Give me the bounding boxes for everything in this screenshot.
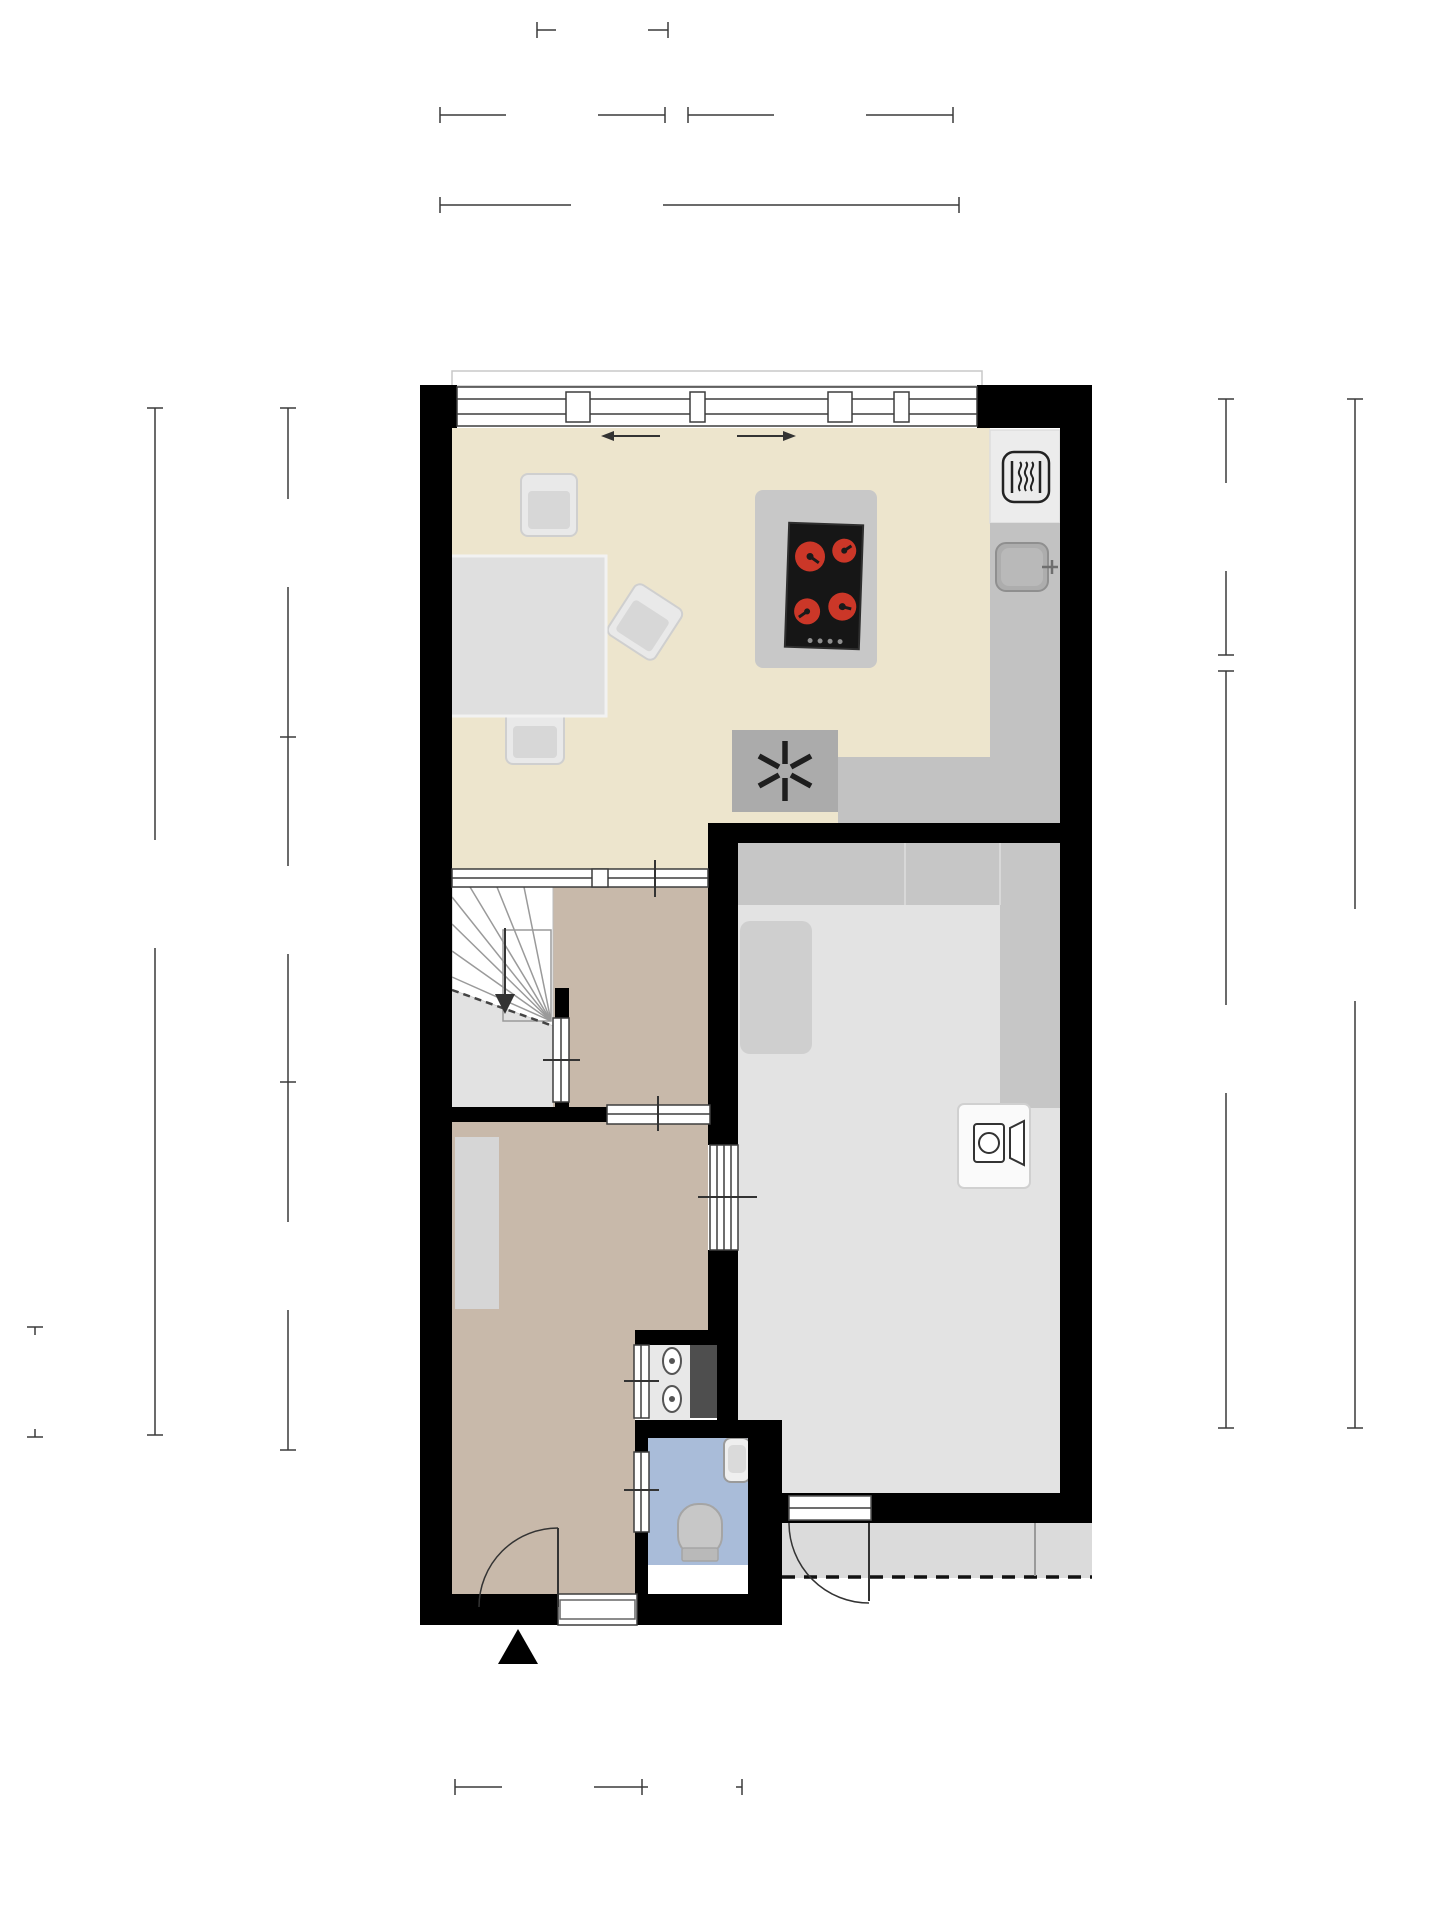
wall — [555, 988, 569, 1022]
entrance-arrow-icon — [498, 1629, 538, 1664]
entree-cabinet — [455, 1137, 499, 1309]
room-entree-floor-lower — [452, 1330, 635, 1594]
wall — [635, 1330, 738, 1345]
wall — [1060, 385, 1092, 1523]
wall — [708, 823, 1060, 843]
floorplan-page — [0, 0, 1440, 1920]
chair — [506, 710, 564, 764]
wall — [420, 385, 457, 428]
stove-icon — [785, 523, 863, 650]
dim-top-2 — [440, 107, 953, 123]
meter-cabinet — [690, 1345, 717, 1418]
wall — [452, 1107, 607, 1122]
window-sill — [452, 371, 982, 386]
chair — [521, 474, 577, 536]
toilet-icon — [678, 1504, 722, 1561]
dim-right-inner — [1218, 399, 1234, 1428]
dim-bottom — [455, 1779, 742, 1795]
floorplan-drawing — [0, 0, 1440, 1920]
wall — [555, 1100, 569, 1122]
dim-left-far — [27, 1327, 43, 1437]
wall — [708, 1250, 738, 1338]
room-keuken-floor-lower — [452, 823, 708, 873]
kitchen-counter-bottom — [838, 757, 1060, 823]
room-overkapping-floor — [782, 1523, 1092, 1578]
dim-left-outer — [147, 408, 163, 1435]
dining-table — [450, 556, 606, 716]
hand-basin-icon — [724, 1438, 750, 1482]
extractor-fan-icon — [732, 730, 838, 812]
wall — [708, 823, 738, 1145]
dim-top-3 — [440, 197, 959, 213]
toilet-threshold — [648, 1565, 748, 1594]
dim-left-inner — [280, 408, 296, 1450]
dim-right-outer — [1347, 399, 1363, 1428]
kitchen-window — [457, 387, 977, 426]
dim-top-1 — [537, 22, 668, 38]
wall — [420, 385, 452, 1625]
washing-machine-icon — [958, 1104, 1030, 1188]
